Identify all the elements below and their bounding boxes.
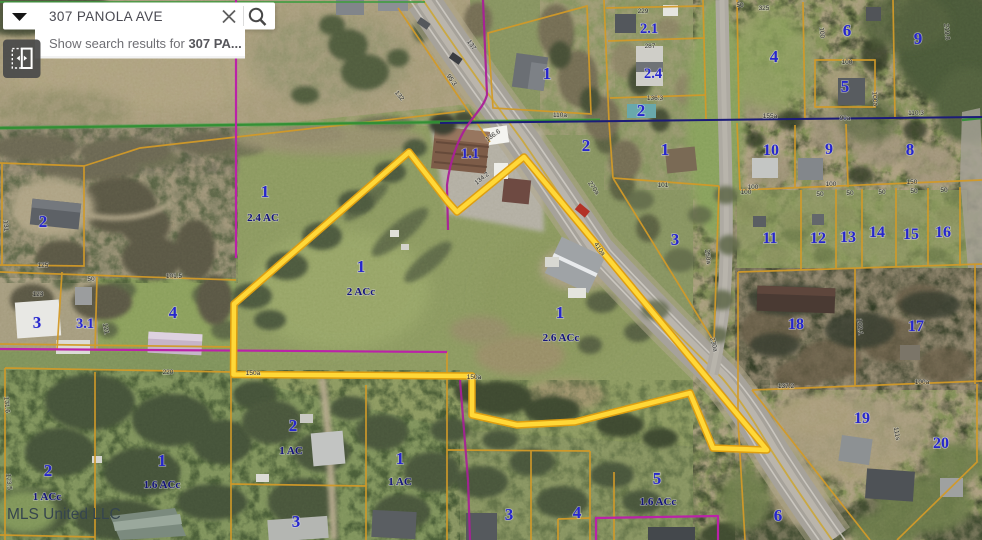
svg-text:50: 50 bbox=[940, 187, 948, 194]
svg-text:100a: 100a bbox=[870, 91, 878, 106]
svg-text:307 PANOLA AVE: 307 PANOLA AVE bbox=[49, 9, 163, 24]
svg-text:2: 2 bbox=[39, 212, 48, 231]
svg-text:2.4 AC: 2.4 AC bbox=[247, 212, 279, 224]
svg-text:131.6: 131.6 bbox=[2, 396, 10, 413]
svg-text:325: 325 bbox=[759, 5, 770, 12]
svg-text:1: 1 bbox=[158, 451, 167, 470]
svg-text:50: 50 bbox=[846, 190, 854, 197]
svg-text:2.4: 2.4 bbox=[644, 66, 662, 82]
svg-text:2 ACc: 2 ACc bbox=[347, 286, 376, 298]
svg-text:123.5: 123.5 bbox=[4, 473, 12, 490]
svg-text:9: 9 bbox=[914, 29, 923, 48]
svg-text:1: 1 bbox=[661, 140, 670, 159]
svg-text:50: 50 bbox=[736, 2, 744, 9]
svg-text:1.6 ACc: 1.6 ACc bbox=[640, 496, 677, 508]
svg-text:1 AC: 1 AC bbox=[279, 445, 303, 457]
svg-text:50: 50 bbox=[910, 188, 918, 195]
svg-text:1: 1 bbox=[261, 182, 270, 201]
svg-text:17: 17 bbox=[908, 318, 924, 335]
svg-text:19: 19 bbox=[854, 410, 870, 427]
svg-text:102.1: 102.1 bbox=[855, 318, 863, 335]
svg-text:110.3: 110.3 bbox=[908, 110, 924, 117]
svg-text:101: 101 bbox=[658, 182, 669, 189]
svg-text:4: 4 bbox=[573, 503, 582, 522]
svg-text:50: 50 bbox=[816, 191, 824, 198]
svg-text:1: 1 bbox=[357, 257, 366, 276]
svg-text:50: 50 bbox=[87, 276, 95, 283]
svg-text:20: 20 bbox=[933, 435, 949, 452]
svg-text:1: 1 bbox=[556, 303, 565, 322]
svg-text:137.2: 137.2 bbox=[778, 383, 795, 390]
svg-text:2.6 ACc: 2.6 ACc bbox=[543, 332, 580, 344]
svg-text:16: 16 bbox=[935, 224, 951, 241]
svg-text:287: 287 bbox=[645, 43, 656, 50]
svg-text:100: 100 bbox=[826, 181, 837, 188]
svg-text:90a: 90a bbox=[840, 115, 851, 122]
svg-text:150a: 150a bbox=[246, 370, 261, 377]
svg-text:13: 13 bbox=[840, 229, 856, 246]
svg-text:229: 229 bbox=[638, 8, 649, 15]
svg-text:131: 131 bbox=[2, 220, 10, 232]
svg-text:2: 2 bbox=[637, 101, 646, 120]
svg-text:12: 12 bbox=[810, 230, 826, 247]
svg-text:2: 2 bbox=[44, 461, 53, 480]
svg-text:4: 4 bbox=[169, 303, 178, 322]
svg-text:14: 14 bbox=[869, 224, 885, 241]
svg-text:5: 5 bbox=[841, 77, 850, 96]
svg-text:3: 3 bbox=[292, 512, 301, 531]
svg-text:123: 123 bbox=[33, 291, 44, 298]
svg-text:15: 15 bbox=[903, 226, 919, 243]
svg-text:1 AC: 1 AC bbox=[388, 476, 412, 488]
svg-text:MLS United LLC: MLS United LLC bbox=[7, 506, 121, 523]
svg-text:6: 6 bbox=[774, 506, 783, 525]
svg-text:2: 2 bbox=[582, 136, 591, 155]
svg-text:Show search results for 307 PA: Show search results for 307 PA... bbox=[49, 36, 242, 51]
svg-text:3: 3 bbox=[671, 230, 680, 249]
svg-text:4: 4 bbox=[770, 47, 779, 66]
svg-text:125: 125 bbox=[38, 262, 49, 269]
svg-text:6: 6 bbox=[843, 21, 852, 40]
svg-text:100: 100 bbox=[818, 27, 826, 39]
svg-text:2.1: 2.1 bbox=[640, 21, 658, 37]
svg-text:1.6 ACc: 1.6 ACc bbox=[144, 479, 181, 491]
svg-text:219.8: 219.8 bbox=[942, 23, 950, 40]
svg-text:10: 10 bbox=[763, 142, 779, 159]
svg-text:1 ACc: 1 ACc bbox=[33, 491, 62, 503]
svg-text:3.1: 3.1 bbox=[76, 316, 94, 332]
svg-text:3: 3 bbox=[505, 505, 514, 524]
svg-text:1.1: 1.1 bbox=[461, 146, 479, 162]
svg-text:100: 100 bbox=[741, 189, 752, 196]
svg-text:2: 2 bbox=[289, 416, 298, 435]
svg-text:100a: 100a bbox=[915, 379, 930, 386]
svg-text:136.3: 136.3 bbox=[647, 95, 664, 102]
svg-text:150a: 150a bbox=[467, 374, 482, 381]
svg-text:1: 1 bbox=[396, 449, 405, 468]
svg-text:8: 8 bbox=[906, 140, 915, 159]
svg-text:100: 100 bbox=[842, 59, 853, 66]
svg-text:50: 50 bbox=[878, 189, 886, 196]
svg-text:110a: 110a bbox=[553, 112, 567, 119]
svg-text:155a: 155a bbox=[763, 113, 778, 120]
svg-text:101.5: 101.5 bbox=[166, 273, 183, 280]
svg-text:5: 5 bbox=[653, 469, 662, 488]
svg-text:220: 220 bbox=[163, 369, 174, 376]
svg-text:18: 18 bbox=[788, 316, 804, 333]
svg-text:11: 11 bbox=[762, 230, 777, 247]
svg-text:3: 3 bbox=[33, 313, 42, 332]
svg-text:150: 150 bbox=[907, 179, 918, 186]
svg-text:9: 9 bbox=[825, 141, 833, 158]
svg-text:1: 1 bbox=[543, 64, 552, 83]
